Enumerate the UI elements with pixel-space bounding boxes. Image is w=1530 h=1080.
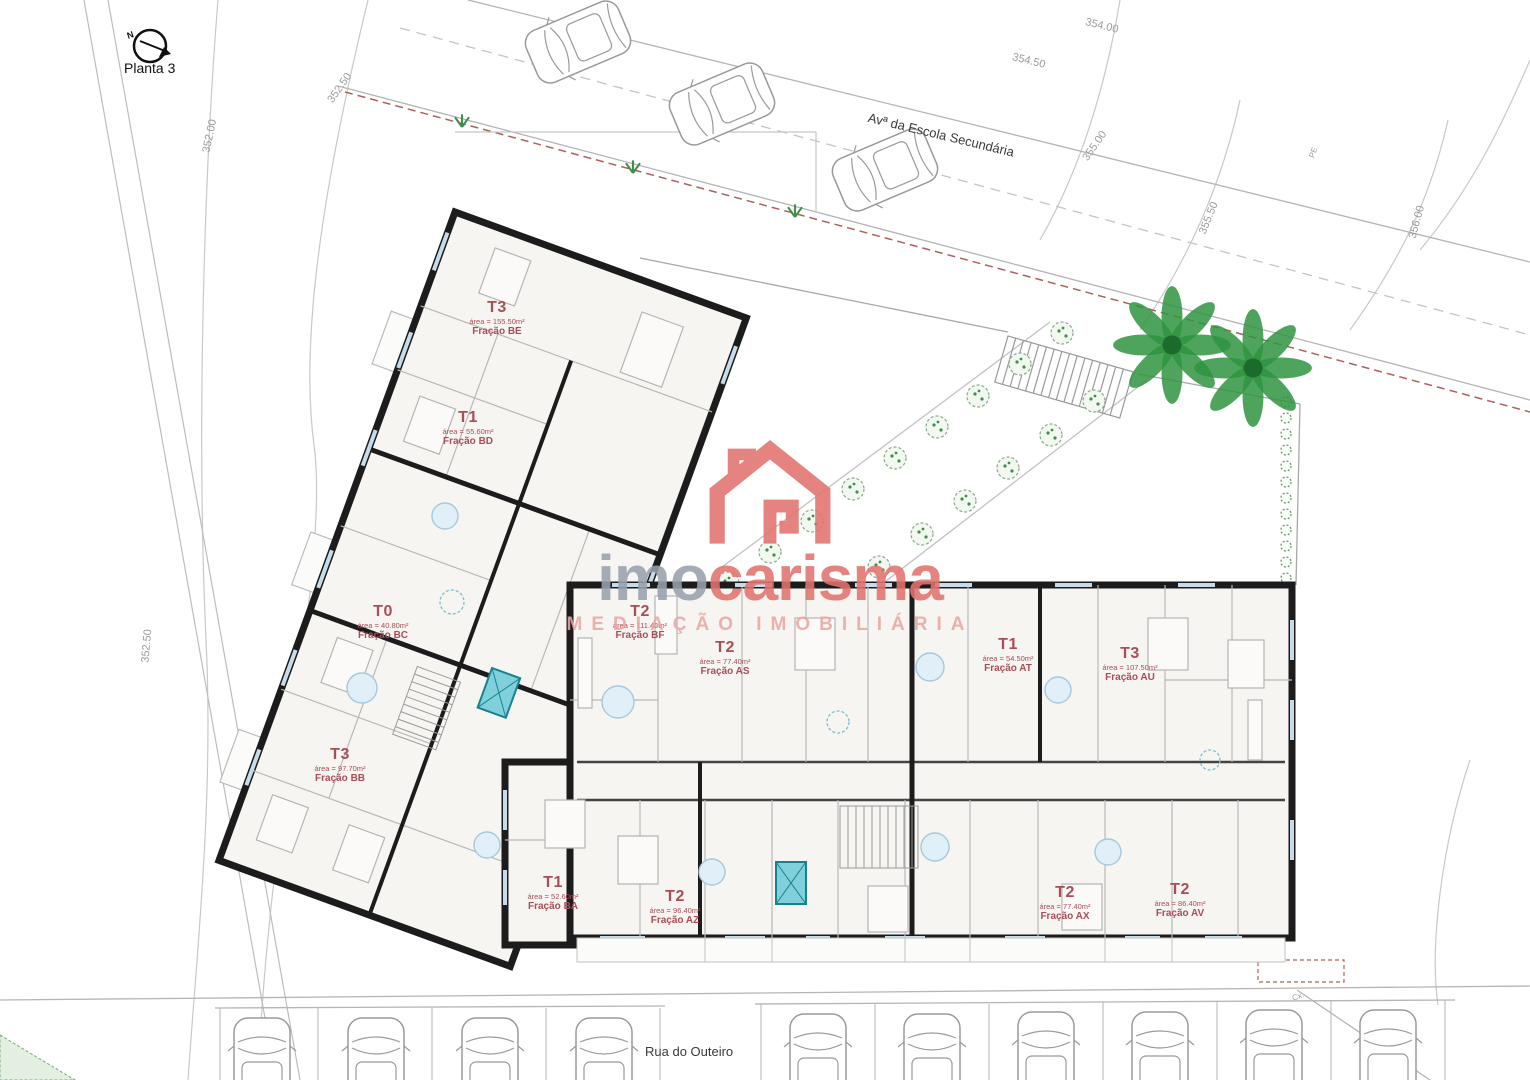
unit-label-at: T1 área = 54.50m² Fração AT	[982, 635, 1033, 675]
elevator-icon	[776, 862, 806, 904]
unit-label-bf: T2 área = 111.40m² Fração BF	[613, 602, 667, 642]
unit-label-ax: T2 área = 77.40m² Fração AX	[1039, 883, 1090, 923]
parked-cars-top	[519, 0, 945, 221]
unit-label-az: T2 área = 96.40m² Fração AZ	[649, 887, 700, 927]
unit-label-ba: T1 área = 52.60m² Fração BA	[527, 873, 578, 913]
unit-label-bc: T0 área = 40.80m² Fração BC	[357, 602, 408, 642]
unit-label-be: T3 área = 155.50m² Fração BE	[469, 298, 524, 338]
green-patch	[0, 1035, 75, 1080]
balcony-strip	[577, 938, 1285, 962]
unit-label-au: T3 área = 107.50m² Fração AU	[1102, 644, 1157, 684]
street-name-bottom: Rua do Outeiro	[645, 1044, 733, 1059]
unit-label-bb: T3 área = 97.70m² Fração BB	[314, 745, 365, 785]
palm-trees	[1113, 286, 1312, 427]
unit-label-as: T2 área = 77.40m² Fração AS	[699, 638, 750, 678]
plot-boundary-lines	[84, 0, 300, 1080]
site-plan-drawing	[0, 0, 1530, 1080]
north-arrow-icon	[134, 30, 171, 62]
unit-label-bd: T1 área = 55.60m² Fração BD	[442, 408, 493, 448]
plan-title: Planta 3	[124, 60, 175, 76]
floor-plan-canvas: Planta 3 N Avª da Escola Secundária Rua …	[0, 0, 1530, 1080]
unit-label-av: T2 área = 86.40m² Fração AV	[1154, 880, 1205, 920]
parked-cars-bottom	[228, 1010, 1422, 1080]
